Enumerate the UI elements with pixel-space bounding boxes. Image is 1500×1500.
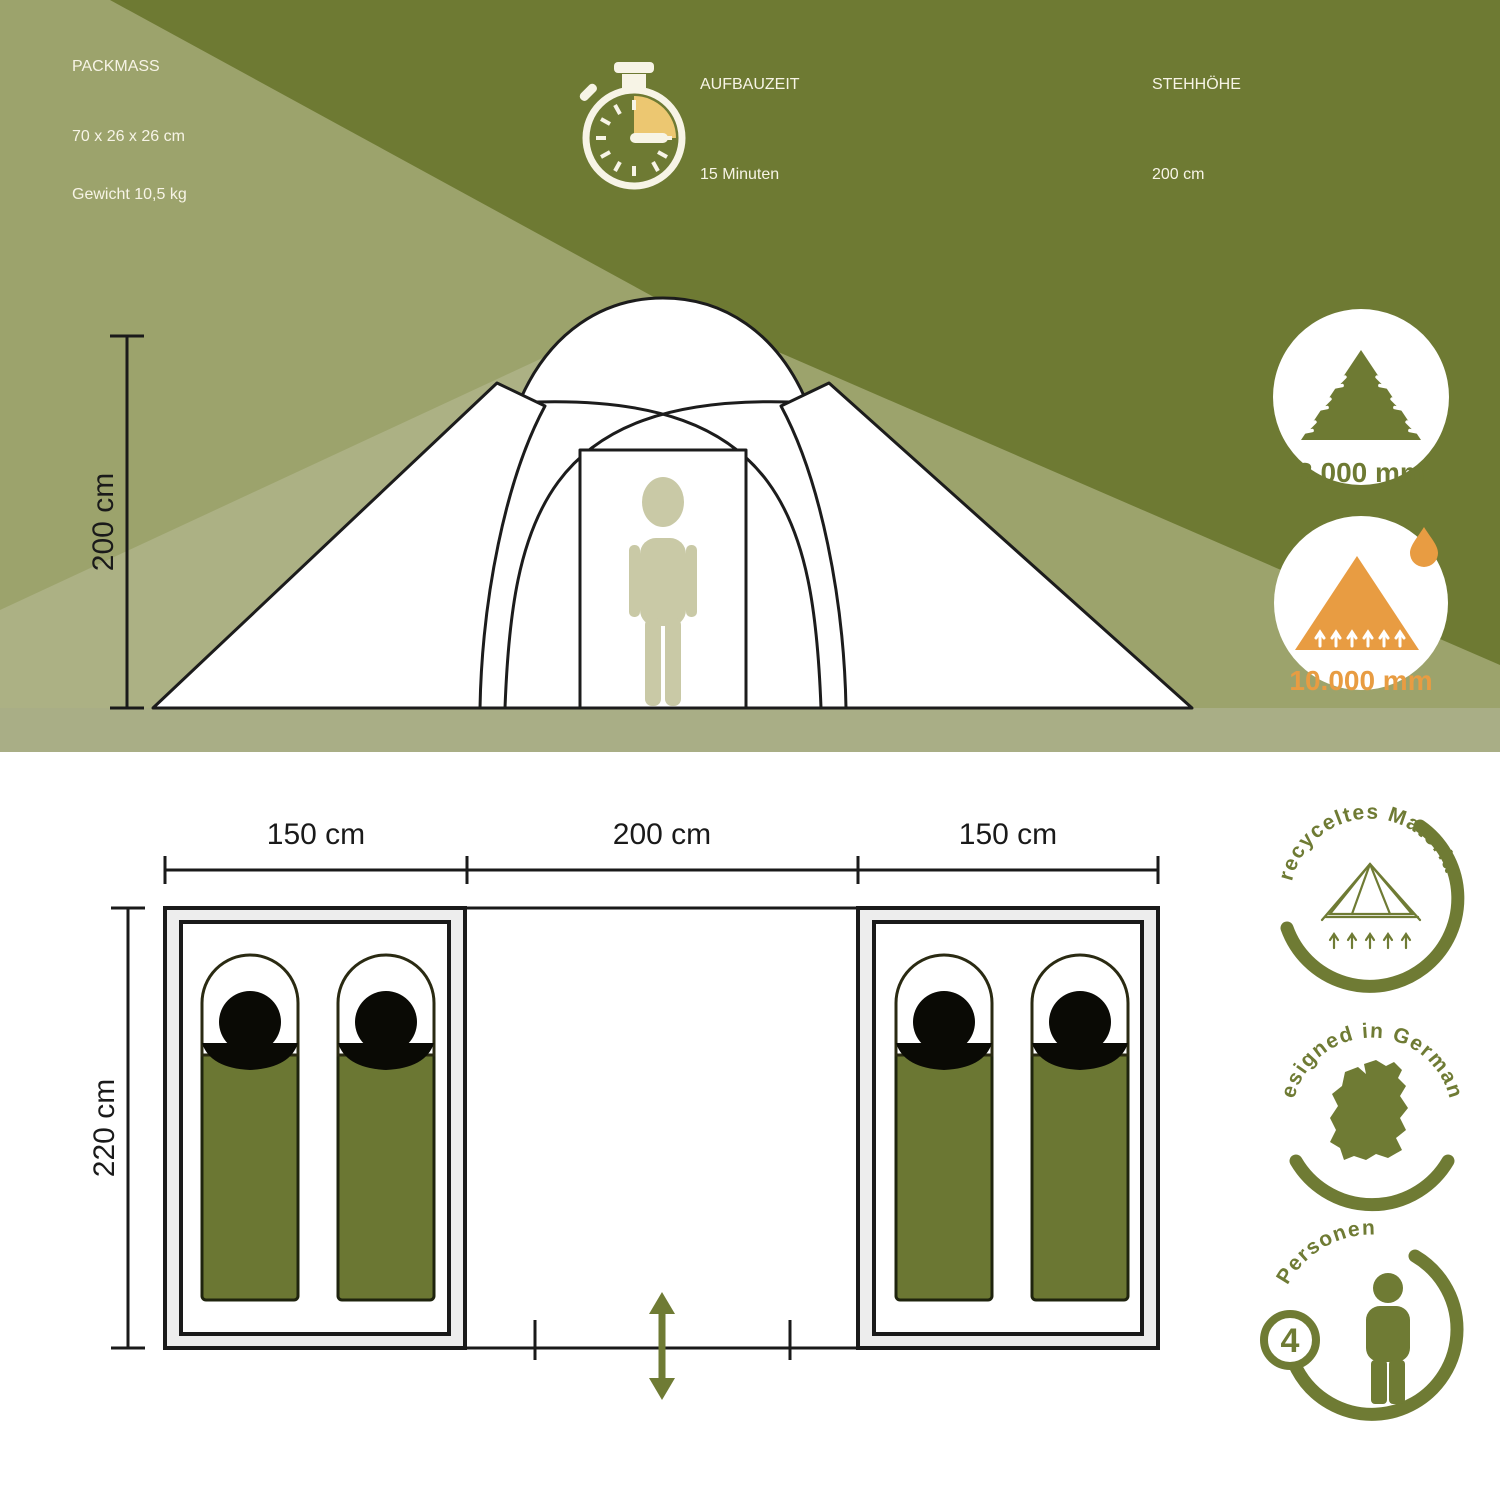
aufbauzeit-title: AUFBAUZEIT <box>700 76 800 94</box>
packmass-weight: Gewicht 10,5 kg <box>72 186 187 204</box>
svg-text:recyceltes Material: recyceltes Material <box>0 752 1463 883</box>
width-dimension-line <box>165 856 1158 884</box>
floorplan-section: 150 cm 200 cm 150 cm 220 cm <box>0 752 1500 1500</box>
stehhoehe-title: STEHHÖHE <box>1152 76 1241 94</box>
depth-dimension-label: 220 cm <box>88 1079 121 1177</box>
water-column-badge-outer: 3.000 mm <box>1273 309 1449 488</box>
water-column-badge-floor: 10.000 mm <box>1274 516 1448 696</box>
water-column-outer-label: 3.000 mm <box>1297 457 1425 488</box>
sleeping-bag <box>338 955 434 1300</box>
packmass-title: PACKMASS <box>72 58 160 76</box>
seal-material-label: recyceltes Material <box>0 752 1463 883</box>
aufbauzeit-value: 15 Minuten <box>700 166 779 184</box>
sleeping-bag <box>202 955 298 1300</box>
water-column-floor-label: 10.000 mm <box>1289 665 1432 696</box>
stehhoehe-value: 200 cm <box>1152 166 1204 184</box>
packmass-dimensions: 70 x 26 x 26 cm <box>72 128 185 146</box>
width-label-right: 150 cm <box>959 818 1057 851</box>
width-label-center: 200 cm <box>613 818 711 851</box>
ground-band <box>0 708 1500 752</box>
width-label-left: 150 cm <box>267 818 365 851</box>
sleeping-bag <box>1032 955 1128 1300</box>
seal-persons: Personen 4 <box>1264 1216 1457 1415</box>
top-section-art: 200 cm <box>0 0 1500 752</box>
tent-infographic: 200 cm <box>0 0 1500 1500</box>
persons-count: 4 <box>1281 1322 1300 1360</box>
height-dimension-label: 200 cm <box>87 473 120 571</box>
sleeping-bag <box>896 955 992 1300</box>
